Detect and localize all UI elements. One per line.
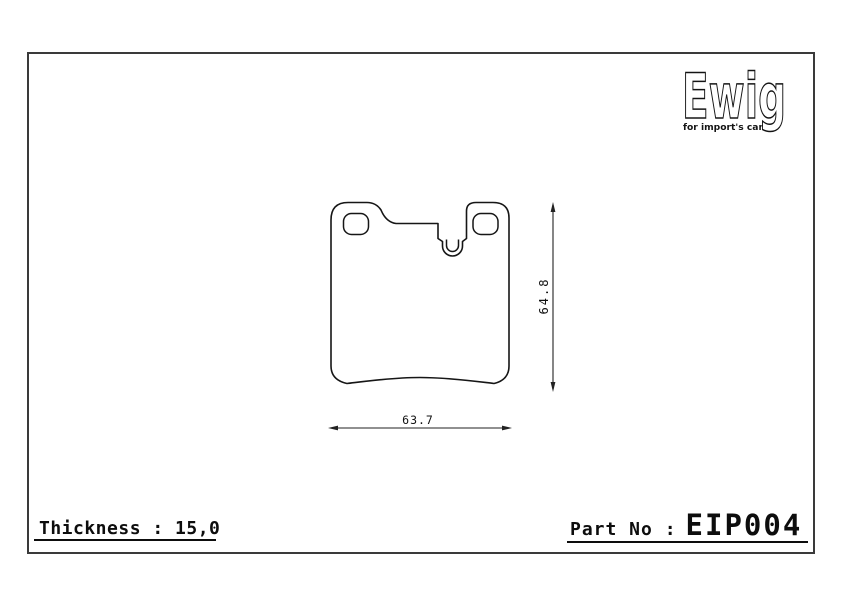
dimension-height: 64.8 — [537, 202, 555, 392]
center-slot-inner-wall — [447, 240, 459, 252]
right-ear-hole — [473, 214, 498, 235]
arrow-down-icon — [551, 382, 556, 392]
brake-pad-outline — [331, 203, 509, 384]
brake-pad-drawing: 64.8 63.7 — [0, 0, 842, 595]
dimension-width: 63.7 — [328, 413, 512, 430]
dimension-height-value: 64.8 — [537, 278, 551, 315]
arrow-left-icon — [328, 426, 338, 431]
left-ear-hole — [344, 214, 369, 235]
dimension-width-value: 63.7 — [402, 413, 434, 427]
part-number-block: Part No : EIP004 — [567, 508, 808, 543]
part-number-label: Part No : — [570, 519, 677, 540]
arrow-right-icon — [502, 426, 512, 431]
thickness-label: Thickness : 15,0 — [34, 517, 216, 541]
arrow-up-icon — [551, 202, 556, 212]
part-number-value: EIP004 — [686, 508, 803, 542]
